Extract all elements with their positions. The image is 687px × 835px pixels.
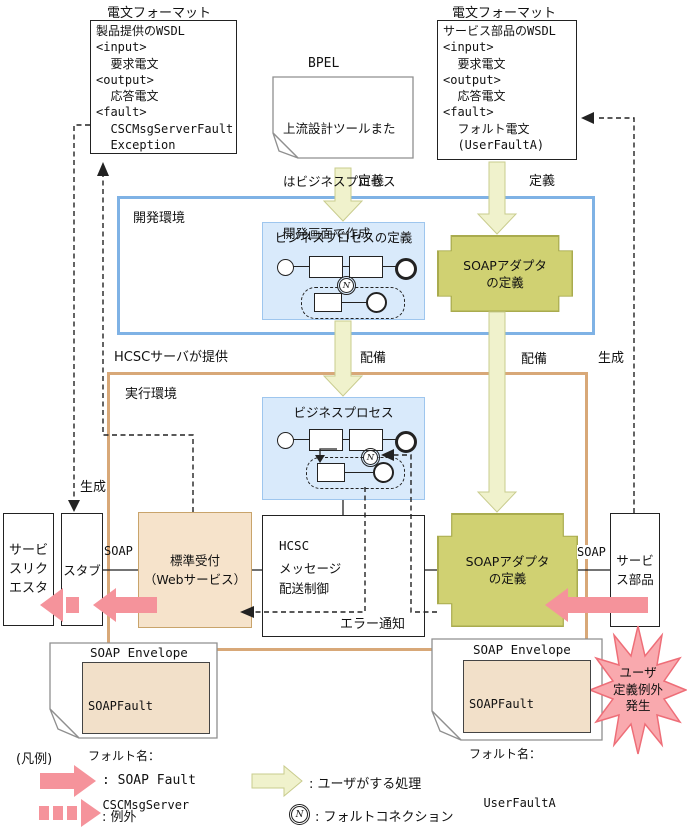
user-exception-text: ユーザ 定義例外 発生	[596, 665, 680, 715]
hcsc-provided-label: HCSCサーバが提供	[114, 346, 228, 365]
wsdl-line: <fault>	[443, 104, 571, 120]
bpmn-task-icon	[317, 463, 345, 482]
soap-envelope-content-right: SOAPFault フォルト名： UserFaultA	[463, 660, 591, 733]
soap-adapter-definition-dev-label: SOAPアダプタ の定義	[437, 235, 573, 312]
soap-adapter-text-line: SOAPアダプタ	[466, 553, 550, 570]
bpmn-end-icon	[366, 292, 387, 313]
bpmn-fault-handler-group	[306, 457, 405, 489]
fault-connection-icon: N	[339, 278, 354, 293]
legend-title: (凡例)	[16, 748, 52, 767]
runtime-environment-label: 実行環境	[125, 383, 177, 402]
user-exception-line: ユーザ	[619, 665, 656, 682]
servicepart-wsdl-dashed-line	[596, 118, 634, 513]
user-exception-line: 発生	[625, 698, 650, 715]
deploy-label-right: 配備	[521, 348, 547, 367]
wsdl-line: 応答電文	[96, 88, 231, 104]
message-format-label-left: 電文フォーマット	[107, 2, 211, 21]
bpel-note-line: 上流設計ツールまた	[283, 120, 396, 138]
wsdl-line: <output>	[443, 72, 571, 88]
wsdl-line: 製品提供のWSDL	[96, 23, 231, 39]
define-label-right: 定義	[529, 170, 555, 189]
envelope-line: UserFaultA	[469, 795, 585, 812]
stub-box: スタブ	[61, 513, 103, 626]
define-label-left: 定義	[358, 170, 384, 189]
service-requester-box: サービ スリク エスタ	[3, 513, 54, 626]
wsdl-line: <input>	[96, 39, 231, 55]
standard-reception-box: 標準受付 （Webサービス）	[138, 512, 252, 628]
service-part-line: サービ	[616, 551, 654, 570]
bpmn-end-icon	[395, 258, 417, 280]
servicepart-wsdl-arrowhead	[581, 112, 594, 124]
wsdl-line: Exception	[96, 137, 231, 153]
bpmn-end-icon	[373, 462, 394, 483]
stub-label: スタブ	[63, 560, 101, 579]
soap-label-left: SOAP	[104, 544, 133, 558]
wsdl-line: 要求電文	[443, 56, 571, 72]
generate-label-right: 生成	[598, 347, 624, 366]
bpmn-task-icon	[309, 429, 343, 451]
soap-envelope-note-left-fold	[50, 709, 79, 738]
soap-envelope-note-right-fold	[432, 711, 461, 740]
wsdl-line: サービス部品のWSDL	[443, 23, 571, 39]
standard-reception-line: （Webサービス）	[144, 570, 246, 589]
message-format-label-right: 電文フォーマット	[452, 2, 556, 21]
standard-reception-line: 標準受付	[170, 551, 220, 570]
soap-adapter-text-line: の定義	[489, 570, 527, 587]
soap-label-right: SOAP	[577, 545, 606, 559]
fault-processing-diagram: 開発環境 実行環境 電文フォーマット 製品提供のWSDL <input> 要求電…	[0, 0, 687, 835]
hcsc-line: HCSC	[279, 538, 309, 553]
business-process-box: ビジネスプロセス N	[262, 397, 425, 500]
bpmn-start-icon	[277, 432, 294, 449]
wsdl-line: (UserFaultA)	[443, 137, 571, 153]
development-environment-label: 開発環境	[133, 207, 185, 226]
service-part-box: サービ ス部品	[610, 513, 660, 627]
deploy-label-left: 配備	[360, 347, 386, 366]
bpmn-task-icon	[349, 429, 383, 451]
soap-adapter-text-line: SOAPアダプタ	[463, 257, 547, 274]
service-requester-line: スリク	[9, 560, 48, 579]
wsdl-line: <output>	[96, 72, 231, 88]
bpel-label: BPEL	[308, 56, 339, 71]
service-part-line: ス部品	[616, 570, 654, 589]
fault-connection-letter: N	[296, 810, 304, 820]
wsdl-line: フォルト電文	[443, 121, 571, 137]
wsdl-line: <fault>	[96, 104, 231, 120]
generate-stub-dashed-line	[74, 125, 90, 502]
fault-connection-letter: N	[343, 281, 350, 291]
soap-envelope-content-left: SOAPFault フォルト名： CSCMsgServer FaultExcep…	[82, 662, 210, 734]
bpel-note-line: 開発画面で作成	[283, 225, 396, 243]
wsdl-line: 要求電文	[96, 56, 231, 72]
error-notification-label: エラー通知	[340, 613, 405, 632]
generate-stub-arrowhead	[68, 500, 80, 512]
soap-envelope-title-right: SOAP Envelope	[473, 642, 571, 657]
legend-fault-connection-icon: N	[291, 806, 308, 823]
bpmn-task-icon	[314, 293, 342, 312]
product-wsdl-box: 製品提供のWSDL <input> 要求電文 <output> 応答電文 <fa…	[90, 20, 237, 154]
bpmn-end-icon	[395, 431, 417, 453]
reception-wsdl-arrowhead	[97, 162, 109, 176]
bpmn-flow-line	[283, 439, 411, 440]
legend-user-action-arrow	[252, 766, 302, 796]
hcsc-line: メッセージ	[279, 558, 341, 577]
legend-soap-fault-label: : SOAP Fault	[102, 773, 196, 788]
envelope-line: フォルト名：	[469, 746, 585, 763]
service-requester-line: サービ	[9, 541, 48, 560]
envelope-line: フォルト名：	[88, 748, 204, 765]
wsdl-line: <input>	[443, 39, 571, 55]
soap-envelope-title-left: SOAP Envelope	[90, 645, 188, 660]
soap-adapter-definition-run-label: SOAPアダプタ の定義	[437, 513, 578, 627]
service-part-wsdl-box: サービス部品のWSDL <input> 要求電文 <output> 応答電文 <…	[437, 20, 577, 160]
soap-adapter-text-line: の定義	[486, 274, 524, 291]
hcsc-line: 配送制御	[279, 578, 329, 597]
envelope-line: SOAPFault	[88, 698, 204, 715]
service-requester-line: エスタ	[9, 579, 48, 598]
fault-connection-letter: N	[367, 453, 374, 463]
bpmn-flow-line	[341, 472, 373, 473]
envelope-line: SOAPFault	[469, 696, 585, 713]
generate-label-left: 生成	[80, 476, 106, 495]
wsdl-line: CSCMsgServerFault	[96, 121, 231, 137]
user-exception-line: 定義例外	[613, 682, 663, 699]
legend-fault-connection-label: : フォルトコネクション	[315, 806, 454, 825]
legend-exception-dash	[39, 806, 49, 820]
legend-exception-label: : 例外	[102, 806, 137, 825]
bpmn-flow-line	[338, 302, 368, 303]
bpmn-fault-handler-group	[301, 287, 405, 319]
business-process-title: ビジネスプロセス	[263, 402, 424, 421]
legend-user-action-label: : ユーザがする処理	[309, 773, 421, 792]
legend-exception-dash	[53, 806, 63, 820]
wsdl-line: 応答電文	[443, 88, 571, 104]
legend-exception-dash	[67, 806, 77, 820]
fault-connection-icon: N	[363, 450, 378, 465]
